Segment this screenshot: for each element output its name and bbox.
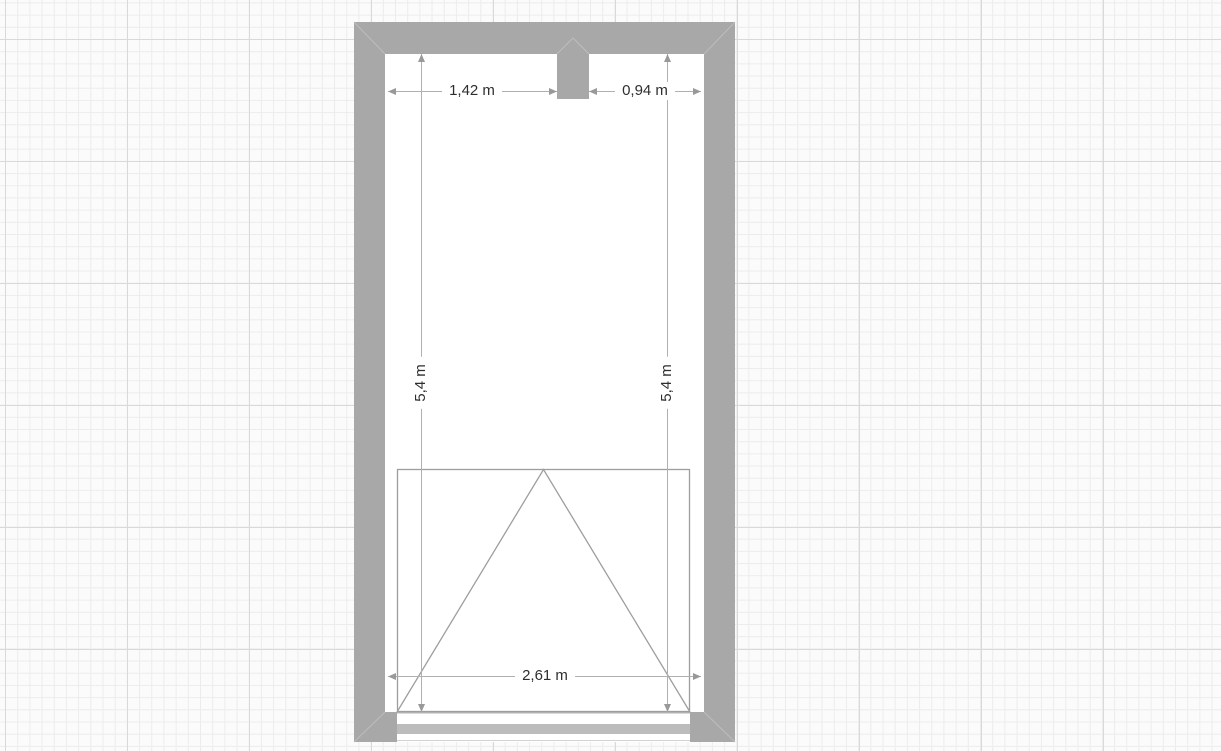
door-panel[interactable] [397,724,690,734]
dimension-label-right-side[interactable]: 5,4 m [658,357,676,409]
dimension-label-left-side[interactable]: 5,4 m [412,357,430,409]
wall-right[interactable] [704,22,735,742]
room-floor[interactable] [385,54,704,712]
floor-plan-drawing [0,0,1221,751]
dimension-label-top-right[interactable]: 0,94 m [615,82,675,100]
wall-stub-pillar[interactable] [557,54,589,99]
wall-bottom-left-segment[interactable] [354,712,397,742]
wall-left[interactable] [354,22,385,742]
wall-bottom-right-segment[interactable] [690,712,735,742]
dimension-label-bottom[interactable]: 2,61 m [515,667,575,685]
wall-top[interactable] [354,22,735,54]
plan-canvas[interactable]: 1,42 m 0,94 m 5,4 m 5,4 m 2,61 m [0,0,1221,751]
dimension-label-top-left[interactable]: 1,42 m [442,82,502,100]
